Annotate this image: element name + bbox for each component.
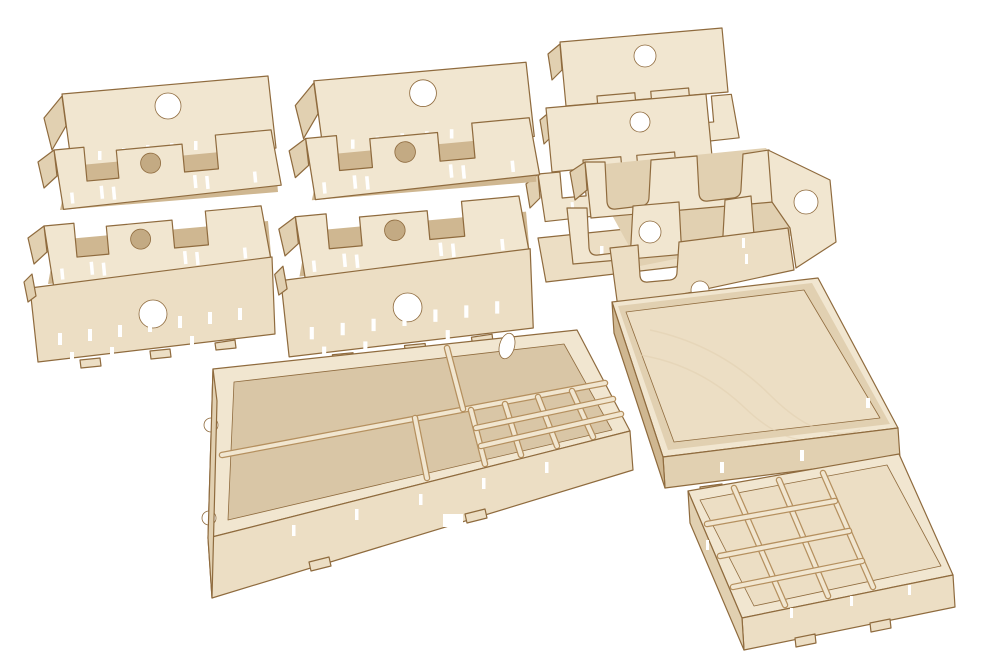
finger-hole [794,190,818,214]
grid-tray-small: Small tray with 3x4 grid of cells and an… [688,454,955,650]
product-photo: Product photo of seven light birch laser… [0,0,1000,666]
card-tray-left: Card tray with two notched divider rows,… [24,76,282,368]
wall-end-tab [548,44,562,80]
finger-hole [634,45,656,67]
notch-cutout [443,514,463,527]
photo-canvas: Product photo of seven light birch laser… [0,0,1000,666]
finger-hole [630,112,650,132]
card-tray-center: Card tray with two notched divider rows,… [275,62,540,363]
finger-hole [639,221,661,243]
organizer-tray-large: Large organizer tray with long compartme… [202,330,633,598]
